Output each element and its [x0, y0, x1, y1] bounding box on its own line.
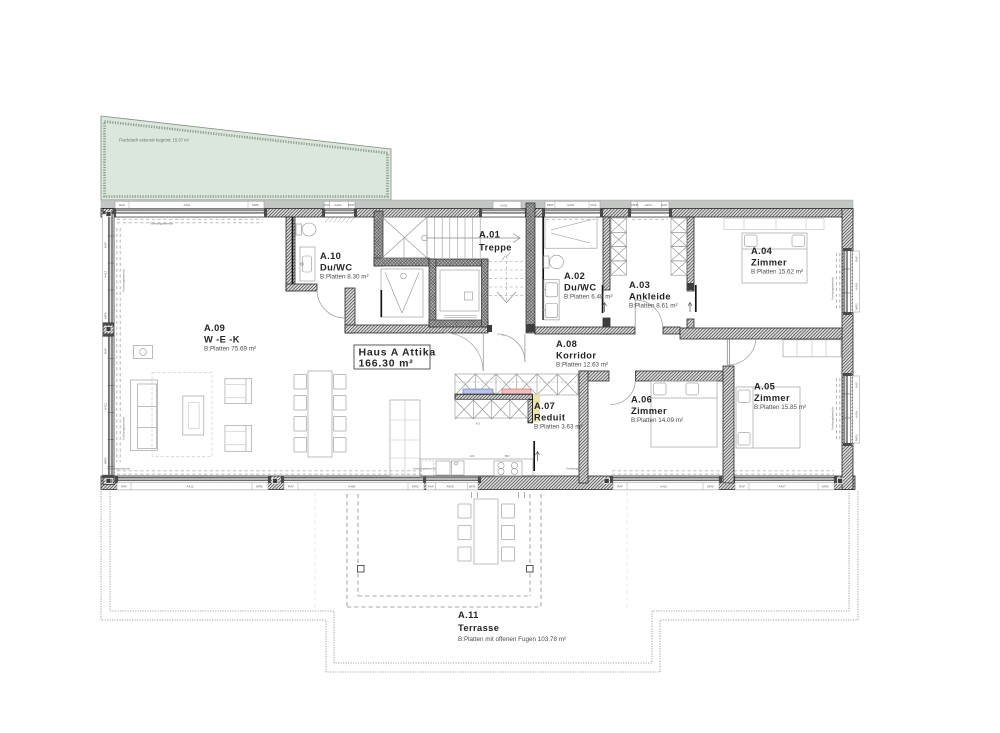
- svg-text:166.30 m²: 166.30 m²: [359, 358, 414, 370]
- svg-text:Vorhangsbereich: Vorhangsbereich: [122, 417, 126, 440]
- svg-text:A402: A402: [334, 203, 342, 207]
- svg-text:B:Platten 6.48 m²: B:Platten 6.48 m²: [564, 294, 613, 301]
- svg-text:A.09: A.09: [204, 323, 225, 333]
- svg-text:A.04: A.04: [751, 246, 773, 256]
- svg-text:MFB: MFB: [707, 484, 714, 488]
- svg-text:MFB: MFB: [256, 484, 263, 488]
- svg-text:Flachdach extensiv begrünt: 15: Flachdach extensiv begrünt: 15.97 m²: [119, 138, 190, 143]
- svg-text:A.08: A.08: [556, 339, 577, 349]
- svg-text:A412: A412: [104, 270, 108, 278]
- svg-text:RAF: RAF: [104, 242, 108, 248]
- svg-text:B:Platten 8.30 m²: B:Platten 8.30 m²: [320, 274, 369, 281]
- svg-text:RAF: RAF: [739, 484, 745, 488]
- svg-text:RAF: RAF: [428, 484, 434, 488]
- svg-text:Vorhangsbereich: Vorhangsbereich: [831, 407, 835, 430]
- svg-text:MFB: MFB: [822, 484, 829, 488]
- svg-text:A.06: A.06: [631, 395, 652, 405]
- svg-text:RAF: RAF: [324, 203, 330, 207]
- svg-text:MFB: MFB: [855, 303, 859, 310]
- svg-text:Vorhangsbereich: Vorhangsbereich: [122, 269, 126, 292]
- svg-text:MFB: MFB: [631, 203, 638, 207]
- svg-text:K3: K3: [476, 422, 480, 426]
- svg-text:A410: A410: [660, 484, 668, 488]
- svg-text:A411: A411: [187, 484, 194, 488]
- svg-text:A.01: A.01: [479, 230, 500, 240]
- svg-text:A.02: A.02: [564, 271, 585, 281]
- svg-text:RAF: RAF: [288, 484, 294, 488]
- svg-text:BO: BO: [505, 454, 510, 458]
- svg-text:A.07: A.07: [534, 401, 555, 411]
- svg-text:A403: A403: [567, 203, 575, 207]
- svg-text:GS: GS: [470, 454, 474, 458]
- svg-text:Korridor: Korridor: [556, 351, 596, 361]
- svg-text:MFB: MFB: [855, 434, 859, 441]
- svg-text:W -E -K: W -E -K: [204, 334, 240, 344]
- svg-text:RAF: RAF: [855, 256, 859, 262]
- svg-text:A.05: A.05: [754, 382, 775, 392]
- svg-text:B:Platten 14.09 m²: B:Platten 14.09 m²: [631, 417, 683, 424]
- svg-text:RAF: RAF: [591, 203, 597, 207]
- svg-text:MFB: MFB: [104, 457, 108, 464]
- svg-text:B:Platten 3.63 m²: B:Platten 3.63 m²: [534, 424, 583, 431]
- svg-text:A.03: A.03: [629, 280, 650, 290]
- svg-text:Vorhangsbereich: Vorhangsbereich: [831, 277, 835, 300]
- svg-text:MFB: MFB: [412, 484, 419, 488]
- svg-text:RAF: RAF: [617, 484, 623, 488]
- svg-text:A.10: A.10: [320, 251, 341, 261]
- svg-text:A408: A408: [348, 484, 356, 488]
- svg-text:Ankleide: Ankleide: [629, 292, 671, 302]
- svg-text:Vorhangsbereich: Vorhangsbereich: [413, 466, 436, 470]
- svg-text:A407: A407: [779, 484, 787, 488]
- svg-text:Du/WC: Du/WC: [320, 263, 352, 273]
- svg-text:A401: A401: [184, 203, 192, 207]
- svg-text:Zimmer: Zimmer: [754, 393, 790, 403]
- svg-text:A409: A409: [446, 484, 454, 488]
- svg-text:Terrasse: Terrasse: [458, 623, 499, 633]
- svg-text:Zimmer: Zimmer: [631, 406, 667, 416]
- svg-text:Treppe: Treppe: [479, 243, 512, 253]
- svg-text:A412: A412: [104, 402, 108, 410]
- svg-text:RAF: RAF: [855, 382, 859, 388]
- svg-text:RAF: RAF: [104, 348, 108, 354]
- svg-text:B:Platten 15.62 m²: B:Platten 15.62 m²: [751, 269, 803, 276]
- svg-text:MFB: MFB: [348, 203, 355, 207]
- svg-text:B:Platten 15.85 m²: B:Platten 15.85 m²: [754, 404, 806, 411]
- svg-text:MFB: MFB: [104, 312, 108, 319]
- svg-text:Vorhangsbereich: Vorhangsbereich: [150, 222, 173, 226]
- svg-text:Vorhangsbereich: Vorhangsbereich: [107, 466, 130, 470]
- svg-text:Reduit: Reduit: [534, 413, 565, 423]
- svg-text:Du/WC: Du/WC: [564, 283, 596, 293]
- svg-text:MFB: MFB: [547, 203, 554, 207]
- svg-text:MFB: MFB: [252, 203, 259, 207]
- svg-text:A404: A404: [645, 203, 653, 207]
- svg-text:¾: ¾: [502, 334, 505, 338]
- svg-text:B:Platten 12.63 m²: B:Platten 12.63 m²: [556, 362, 608, 369]
- svg-text:B:Platten 8.61 m²: B:Platten 8.61 m²: [629, 303, 678, 310]
- svg-text:RAF: RAF: [119, 203, 125, 207]
- svg-text:RAF: RAF: [121, 484, 127, 488]
- svg-text:A405: A405: [855, 282, 859, 290]
- svg-text:MFB: MFB: [469, 484, 476, 488]
- svg-text:B:Platten 75.69 m²: B:Platten 75.69 m²: [204, 345, 256, 352]
- svg-text:A.11: A.11: [458, 610, 479, 620]
- svg-text:RAF: RAF: [661, 203, 667, 207]
- svg-text:A202: A202: [500, 204, 508, 208]
- svg-text:A406: A406: [855, 410, 859, 418]
- svg-text:B:Platten mit offenen Fugen 10: B:Platten mit offenen Fugen 103.78 m²: [458, 636, 566, 643]
- svg-text:Zimmer: Zimmer: [751, 258, 787, 268]
